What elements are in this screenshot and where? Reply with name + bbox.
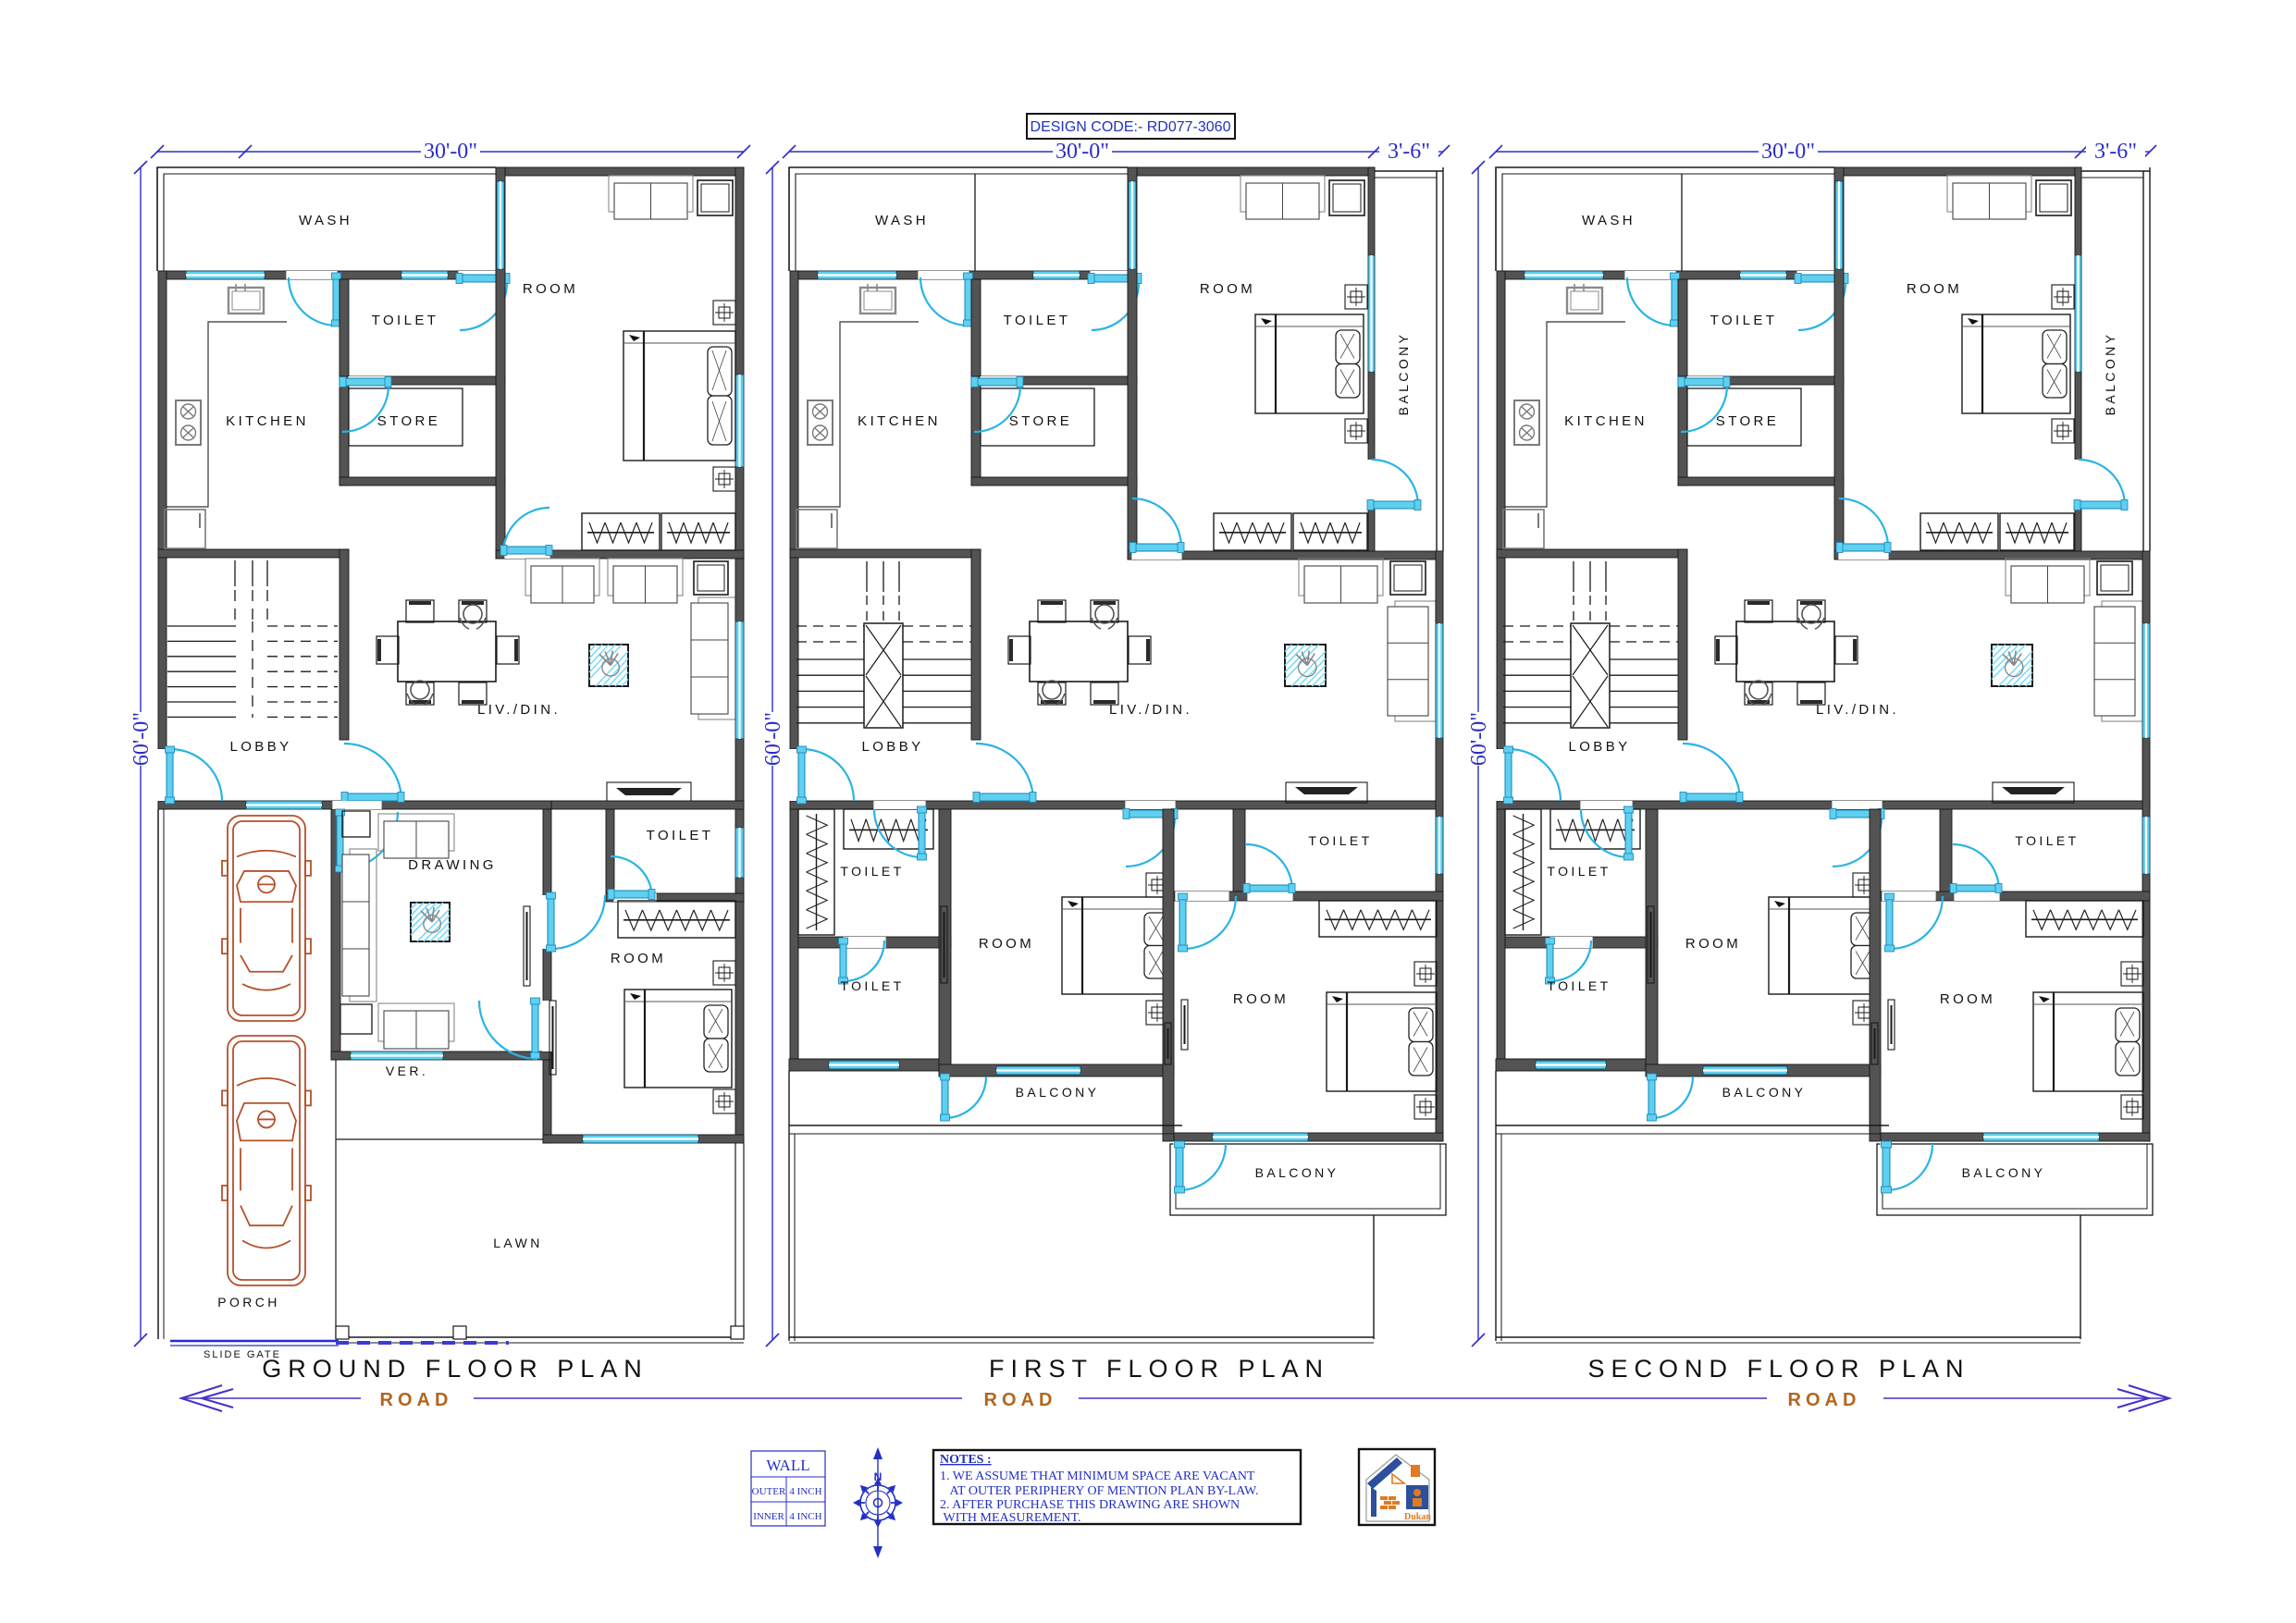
svg-text:BALCONY: BALCONY — [1016, 1085, 1100, 1100]
svg-text:ROOM: ROOM — [979, 936, 1034, 952]
svg-text:AT OUTER PERIPHERY OF MENTION: AT OUTER PERIPHERY OF MENTION PLAN BY-LA… — [940, 1484, 1259, 1498]
svg-text:LIV./DIN.: LIV./DIN. — [1816, 702, 1899, 718]
svg-text:BALCONY: BALCONY — [1962, 1165, 2046, 1180]
svg-text:3'-6": 3'-6" — [2094, 140, 2137, 164]
svg-text:WASH: WASH — [299, 213, 352, 228]
svg-text:BALCONY: BALCONY — [2103, 332, 2117, 416]
svg-text:LOBBY: LOBBY — [229, 739, 291, 755]
svg-text:ROOM: ROOM — [1907, 281, 1962, 297]
svg-text:INNER: INNER — [753, 1511, 784, 1522]
svg-text:4 INCH: 4 INCH — [789, 1486, 821, 1497]
svg-text:FIRST FLOOR PLAN: FIRST FLOOR PLAN — [989, 1355, 1329, 1383]
svg-text:LOBBY: LOBBY — [1568, 739, 1630, 755]
svg-text:PORCH: PORCH — [217, 1295, 280, 1309]
svg-text:LAWN: LAWN — [493, 1236, 543, 1250]
svg-text:TOILET: TOILET — [840, 978, 904, 993]
svg-text:KITCHEN: KITCHEN — [1564, 413, 1648, 429]
svg-text:STORE: STORE — [1009, 413, 1072, 429]
svg-text:BALCONY: BALCONY — [1255, 1165, 1339, 1180]
svg-text:ROOM: ROOM — [523, 281, 578, 297]
svg-text:LOBBY: LOBBY — [861, 739, 923, 755]
svg-text:Dukan: Dukan — [1404, 1512, 1431, 1522]
svg-text:TOILET: TOILET — [840, 864, 904, 879]
svg-text:GROUND FLOOR PLAN: GROUND FLOOR PLAN — [262, 1355, 648, 1383]
svg-text:WITH MEASUREMENT.: WITH MEASUREMENT. — [940, 1511, 1081, 1525]
svg-text:TOILET: TOILET — [1710, 313, 1778, 328]
svg-text:TOILET: TOILET — [1004, 313, 1071, 328]
svg-text:4 INCH: 4 INCH — [789, 1511, 821, 1522]
svg-text:OUTER: OUTER — [752, 1486, 786, 1497]
svg-text:ROAD: ROAD — [1788, 1390, 1861, 1410]
svg-text:30'-0": 30'-0" — [1055, 140, 1109, 164]
svg-text:NOTES :: NOTES : — [940, 1453, 992, 1467]
svg-text:ROOM: ROOM — [1233, 991, 1289, 1007]
svg-text:BALCONY: BALCONY — [1396, 332, 1411, 416]
svg-text:2. AFTER PURCHASE THIS DRAWING: 2. AFTER PURCHASE THIS DRAWING ARE SHOWN — [940, 1498, 1240, 1512]
svg-text:STORE: STORE — [1716, 413, 1779, 429]
svg-text:VER.: VER. — [386, 1064, 428, 1078]
svg-text:WALL: WALL — [766, 1457, 809, 1474]
svg-text:SECOND FLOOR PLAN: SECOND FLOOR PLAN — [1587, 1355, 1969, 1383]
svg-text:ROAD: ROAD — [380, 1390, 453, 1410]
svg-text:TOILET: TOILET — [1547, 978, 1611, 993]
svg-text:3'-6": 3'-6" — [1388, 140, 1430, 164]
svg-text:WASH: WASH — [1582, 213, 1636, 228]
svg-text:1. WE ASSUME THAT MINIMUM SPAC: 1. WE ASSUME THAT MINIMUM SPACE ARE VACA… — [940, 1469, 1255, 1483]
svg-text:DRAWING: DRAWING — [408, 857, 497, 873]
svg-text:KITCHEN: KITCHEN — [226, 413, 309, 429]
svg-text:TOILET: TOILET — [647, 828, 714, 843]
svg-text:TOILET: TOILET — [1547, 864, 1611, 879]
svg-text:N: N — [874, 1470, 883, 1483]
svg-text:ROOM: ROOM — [1200, 281, 1255, 297]
svg-text:60'-0": 60'-0" — [1467, 712, 1491, 766]
svg-text:WASH: WASH — [875, 213, 929, 228]
svg-text:KITCHEN: KITCHEN — [858, 413, 941, 429]
svg-text:TOILET: TOILET — [372, 313, 439, 328]
svg-text:TOILET: TOILET — [1308, 833, 1372, 848]
svg-text:ROOM: ROOM — [611, 951, 666, 966]
svg-text:ROOM: ROOM — [1685, 936, 1741, 952]
svg-text:30'-0": 30'-0" — [424, 140, 477, 164]
svg-text:60'-0": 60'-0" — [761, 712, 785, 766]
svg-text:TOILET: TOILET — [2015, 833, 2079, 848]
svg-text:30'-0": 30'-0" — [1761, 140, 1815, 164]
svg-text:BALCONY: BALCONY — [1722, 1085, 1807, 1100]
svg-text:ROOM: ROOM — [1940, 991, 1995, 1007]
svg-text:60'-0": 60'-0" — [130, 712, 154, 766]
svg-text:LIV./DIN.: LIV./DIN. — [1109, 702, 1192, 718]
svg-text:ROAD: ROAD — [984, 1390, 1057, 1410]
svg-text:STORE: STORE — [377, 413, 440, 429]
svg-text:DESIGN CODE:- RD077-3060: DESIGN CODE:- RD077-3060 — [1031, 119, 1231, 135]
svg-text:LIV./DIN.: LIV./DIN. — [477, 702, 561, 718]
